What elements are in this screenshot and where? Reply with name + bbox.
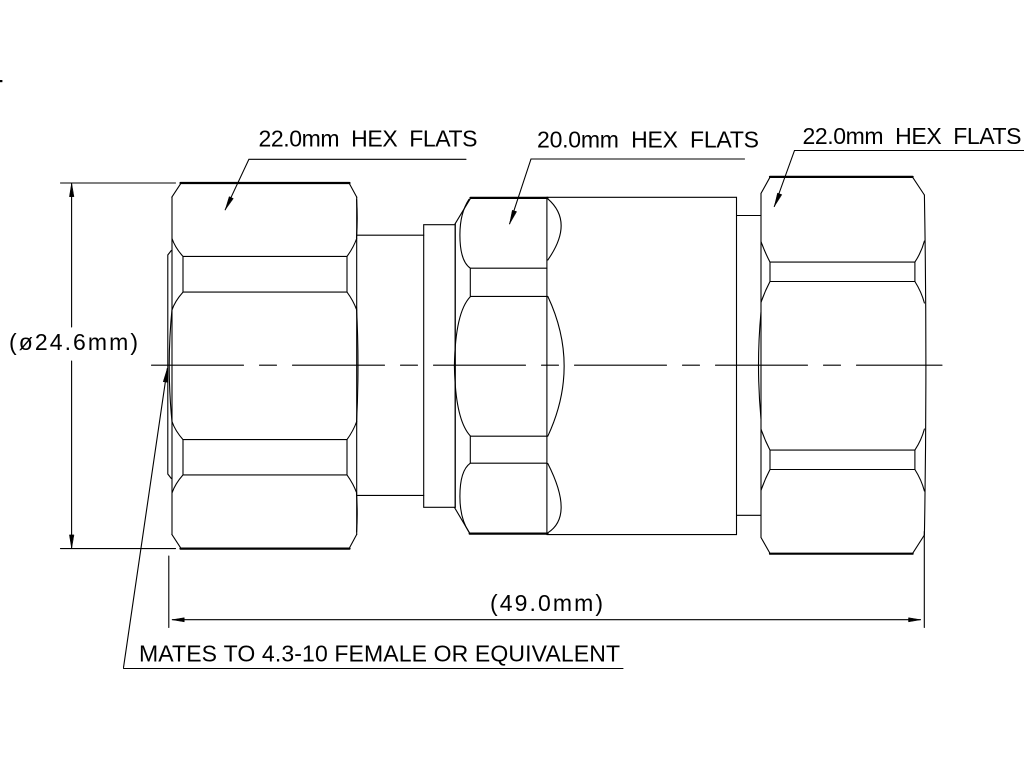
svg-text:(ø24.6mm): (ø24.6mm) — [9, 329, 138, 355]
svg-text:(49.0mm): (49.0mm) — [490, 590, 603, 616]
svg-text:22.0mm HEX FLATS: 22.0mm HEX FLATS — [259, 125, 478, 151]
svg-text:22.0mm HEX FLATS: 22.0mm HEX FLATS — [803, 123, 1022, 149]
svg-text:20.0mm HEX FLATS: 20.0mm HEX FLATS — [537, 126, 759, 152]
svg-text:MATES TO 4.3-10 FEMALE OR EQUI: MATES TO 4.3-10 FEMALE OR EQUIVALENT — [139, 641, 620, 667]
